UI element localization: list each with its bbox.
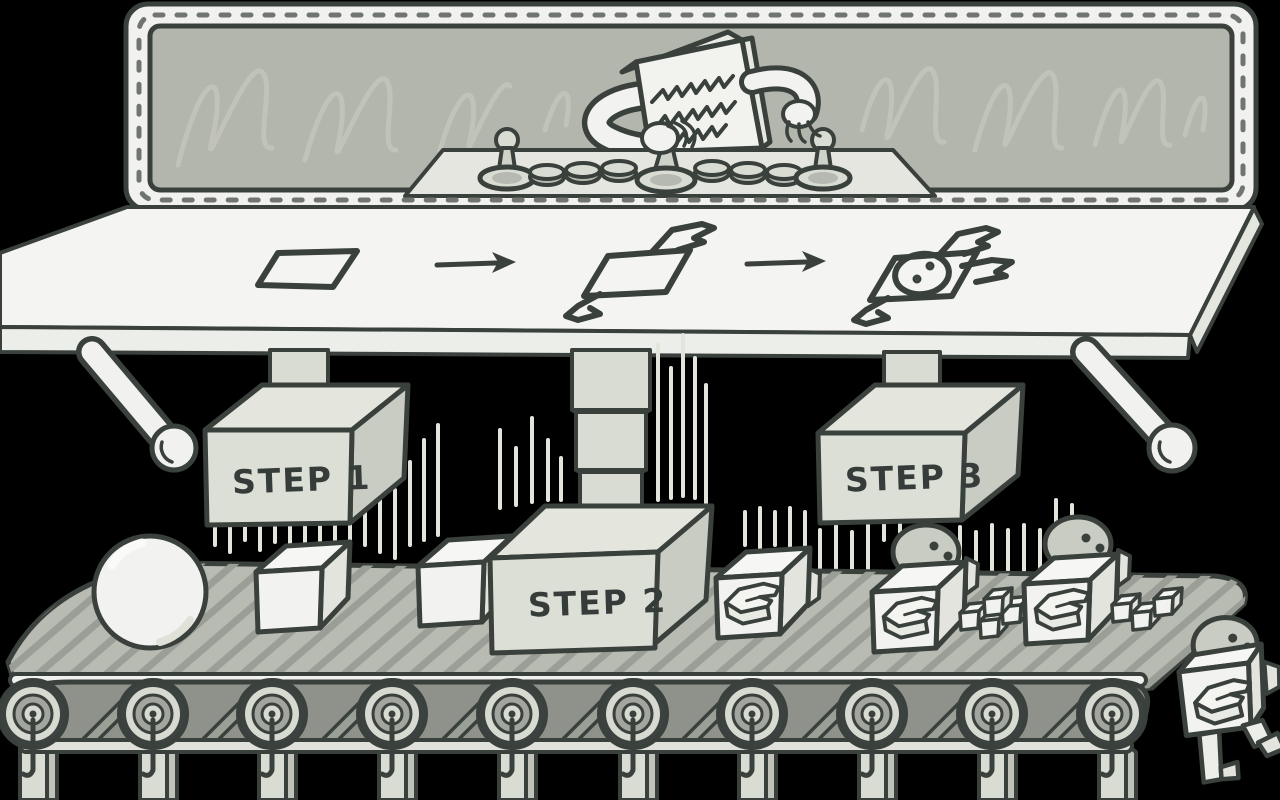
press-segment-2 (576, 412, 646, 470)
panel-button[interactable] (731, 163, 765, 183)
panel-button[interactable] (566, 163, 600, 183)
conveyor-belt: STEP 2 (0, 350, 1280, 800)
step2-label: STEP 2 (527, 581, 668, 625)
panel-button[interactable] (530, 165, 564, 185)
illustration-stage: STEP 1 STEP 3 (0, 0, 1280, 800)
table-leg-right (1086, 352, 1195, 471)
step1-label: STEP 1 (231, 458, 372, 502)
display-table (0, 207, 1262, 358)
step2-press: STEP 2 (490, 350, 712, 653)
step1-machine: STEP 1 (205, 350, 408, 525)
panel-button[interactable] (602, 161, 636, 181)
step3-label: STEP 3 (844, 456, 985, 500)
right-foot-wheel (1149, 425, 1195, 471)
assembly-line-scene: STEP 1 STEP 3 (0, 0, 1280, 800)
panel-button[interactable] (695, 161, 729, 181)
table-top (0, 207, 1254, 335)
belt-bottom-rail (20, 740, 1132, 752)
observation-window (126, 4, 1256, 210)
table-leg-left (92, 352, 196, 470)
belt-item-sphere (94, 536, 206, 648)
press-segment-1 (572, 350, 650, 410)
step3-machine: STEP 3 (818, 352, 1023, 523)
robot-arm (1264, 661, 1280, 694)
left-foot-wheel (152, 426, 196, 470)
